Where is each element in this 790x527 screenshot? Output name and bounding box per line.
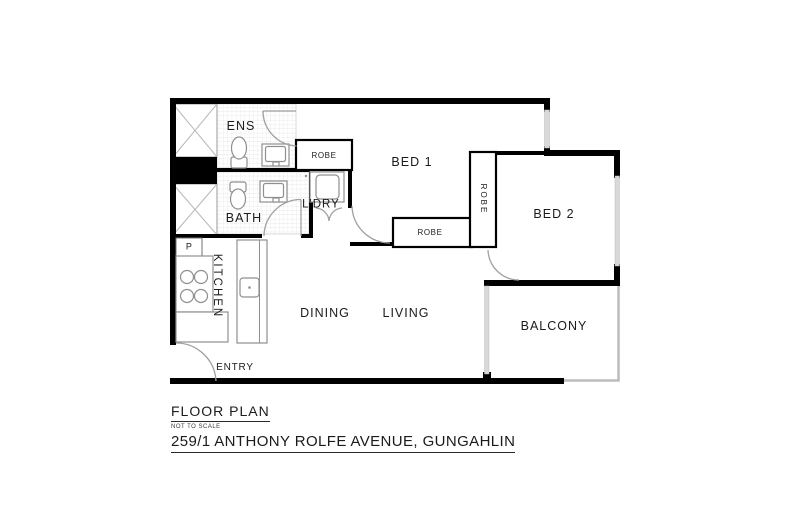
toilet-icon [230,182,246,209]
toilet-icon [231,137,247,168]
room-label-entry: ENTRY [216,363,254,373]
room-label-bath: BATH [226,212,262,225]
room-label-robe-ens: ROBE [311,152,336,160]
address-block: 259/1 ANTHONY ROLFE AVENUE, GUNGAHLIN [171,433,515,453]
window-bed2 [615,176,620,266]
vanity-sink-icon [260,181,287,202]
balcony-railing [564,286,619,381]
cooktop-bench [176,256,213,312]
title-block: FLOOR PLAN NOT TO SCALE [171,403,270,430]
balcony-sliding-door [485,286,490,374]
window-bed1-side [545,110,550,148]
linen-cupboard-icon [173,104,217,157]
vanity-sink-icon [262,144,289,166]
room-label-ldry: L'DRY [302,199,340,211]
island-bench [237,240,267,343]
bed2-door-swing [488,250,519,280]
room-label-kitchen: KITCHEN [210,254,222,318]
room-label-ens: ENS [227,120,256,133]
room-label-dining: DINING [300,307,350,320]
plan-title-text: FLOOR PLAN [171,403,270,422]
room-label-robe-bed1: ROBE [417,229,442,237]
room-label-living: LIVING [383,307,430,320]
bed1-door-swing [352,206,390,243]
floor-plan-page: ENS BATH ROBE L'DRY BED 1 ROBE ROBE BED … [0,0,790,527]
structural-column [170,157,217,184]
room-label-balcony: BALCONY [521,320,588,333]
room-label-bed1: BED 1 [391,156,432,169]
room-label-pantry: P [186,243,192,252]
plan-title: FLOOR PLAN [171,403,270,422]
scale-note: NOT TO SCALE [171,424,270,430]
room-label-bed2: BED 2 [533,208,574,221]
entry-door-swing [176,343,216,381]
address-text: 259/1 ANTHONY ROLFE AVENUE, GUNGAHLIN [171,433,515,453]
linen-cupboard-icon [173,184,217,235]
windows [485,110,620,374]
room-label-robe-bed2: ROBE [479,184,487,215]
